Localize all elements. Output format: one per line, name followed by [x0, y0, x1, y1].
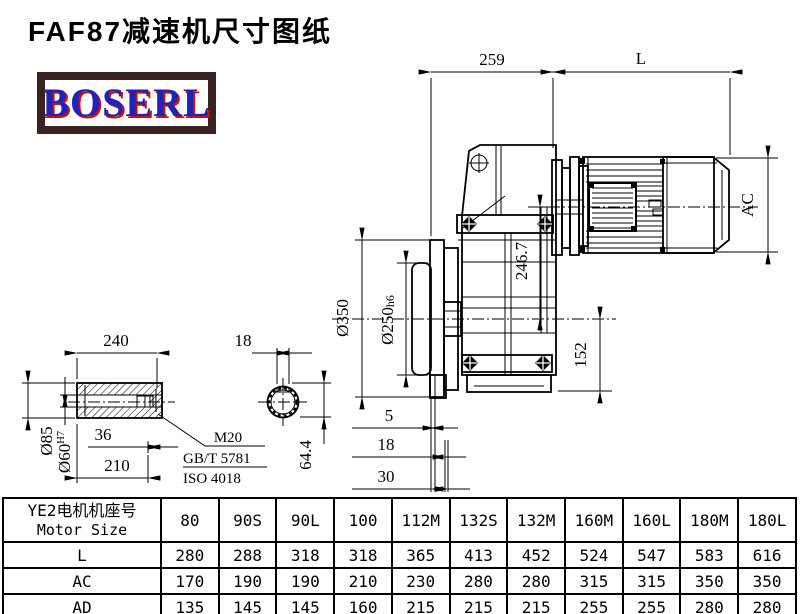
table-row: AC170190190210230280280315315350350	[3, 568, 796, 594]
motor-details	[579, 158, 665, 253]
dimension-value-cell: 315	[565, 568, 623, 594]
frame-size-column-header: 100	[334, 498, 392, 542]
table-row: L280288318318365413452524547583616	[3, 542, 796, 568]
dimension-value-cell: 616	[738, 542, 796, 568]
dimension-value-cell: 452	[507, 542, 565, 568]
dim-key-width-label: 18	[235, 331, 252, 350]
dim-t18: 18	[378, 435, 395, 454]
frame-size-column-header: 180M	[680, 498, 738, 542]
dimension-value-cell: 315	[623, 568, 681, 594]
dim-spigot: Ø250h6	[378, 295, 397, 345]
dimension-value-cell: 583	[680, 542, 738, 568]
dim-5-18-30: 5 18 30	[352, 406, 470, 489]
dimension-value-cell: 280	[450, 568, 508, 594]
dimension-value-cell: 190	[276, 568, 334, 594]
dimension-value-cell: 255	[565, 594, 623, 614]
motor-size-table: YE2电机机座号Motor Size8090S90L100112M132S132…	[2, 497, 797, 614]
dimension-value-cell: 524	[565, 542, 623, 568]
dimension-value-cell: 215	[392, 594, 450, 614]
bolt-target-icon	[469, 153, 489, 173]
dim-t5: 5	[385, 406, 394, 425]
dimension-value-cell: 280	[680, 594, 738, 614]
dimension-value-cell: 318	[276, 542, 334, 568]
frame-size-column-header: 160M	[565, 498, 623, 542]
dimension-value-cell: 350	[680, 568, 738, 594]
standard-gb-label: GB/T 5781	[183, 451, 251, 467]
dim-motor-diameter: AC	[738, 193, 757, 217]
dimension-value-cell: 145	[219, 594, 277, 614]
frame-size-column-header: 132M	[507, 498, 565, 542]
motor-outline	[583, 157, 729, 253]
table-row: AD135145145160215215215255255280280	[3, 594, 796, 614]
thread-callout: M20 GB/T 5781 ISO 4018	[158, 414, 267, 487]
dim-bolt-depth: 36	[95, 425, 112, 444]
standard-iso-label: ISO 4018	[183, 471, 241, 487]
dimension-value-cell: 135	[161, 594, 219, 614]
frame-size-column-header: 90L	[276, 498, 334, 542]
row-label: L	[3, 542, 161, 568]
dimension-value-cell: 215	[507, 594, 565, 614]
dimension-value-cell: 280	[738, 594, 796, 614]
dimension-value-cell: 190	[219, 568, 277, 594]
key-section-view: 18 64.4	[235, 331, 332, 470]
dimension-value-cell: 413	[450, 542, 508, 568]
dimension-value-cell: 350	[738, 568, 796, 594]
dimension-value-cell: 318	[334, 542, 392, 568]
motor-fins	[586, 157, 722, 253]
dim-key-height-label: 64.4	[296, 440, 315, 470]
row-label: AC	[3, 568, 161, 594]
motor-size-header-cell: YE2电机机座号Motor Size	[3, 498, 161, 542]
dim-152: 152	[558, 319, 612, 391]
shaft-detail-view: 240 Ø85 Ø60H7 36	[22, 331, 267, 487]
dimension-value-cell: 365	[392, 542, 450, 568]
dim-36: 36	[88, 425, 178, 453]
dimension-value-cell: 215	[450, 594, 508, 614]
dim-210: 210	[77, 424, 148, 483]
dimension-value-cell: 288	[219, 542, 277, 568]
main-view: 259 L AC 246.7 152	[332, 49, 778, 492]
dimension-value-cell: 145	[276, 594, 334, 614]
dimension-value-cell: 547	[623, 542, 681, 568]
frame-size-column-header: 112M	[392, 498, 450, 542]
dimension-value-cell: 170	[161, 568, 219, 594]
frame-size-column-header: 132S	[450, 498, 508, 542]
dimension-value-cell: 280	[161, 542, 219, 568]
drawing-page: FAF87减速机尺寸图纸 BOSERL	[0, 0, 800, 614]
motor-adapter	[570, 157, 588, 255]
dimension-value-cell: 210	[334, 568, 392, 594]
dim-t30: 30	[378, 467, 395, 486]
dim-flange-od: Ø350	[333, 299, 352, 337]
dimension-value-cell: 255	[623, 594, 681, 614]
dimension-value-cell: 230	[392, 568, 450, 594]
frame-size-column-header: 180L	[738, 498, 796, 542]
header-en: Motor Size	[4, 521, 160, 540]
flange-bolt-icons	[461, 216, 553, 371]
frame-size-column-header: 80	[161, 498, 219, 542]
dim-axis-height: 246.7	[512, 241, 531, 280]
dimension-value-cell: 280	[507, 568, 565, 594]
row-label: AD	[3, 594, 161, 614]
dim-bottom-height: 152	[571, 342, 590, 368]
dim-bore-depth: 210	[104, 456, 130, 475]
dimension-value-cell: 160	[334, 594, 392, 614]
header-cn: YE2电机机座号	[4, 501, 160, 521]
dim-shaft-od: Ø85	[37, 426, 56, 455]
frame-size-column-header: 160L	[623, 498, 681, 542]
dim-top-width: 259	[479, 50, 505, 69]
dim-shaft-length: 240	[103, 331, 129, 350]
dim-259-L: 259 L	[431, 49, 730, 236]
dim-key-width: 18	[235, 331, 313, 384]
thread-size-label: M20	[214, 430, 242, 446]
frame-size-column-header: 90S	[219, 498, 277, 542]
dim-motor-length: L	[636, 49, 646, 68]
dim-shaft-bore: Ø60H7	[55, 431, 74, 473]
dim-AC: AC	[716, 158, 778, 252]
dim-240: 240	[77, 331, 157, 388]
